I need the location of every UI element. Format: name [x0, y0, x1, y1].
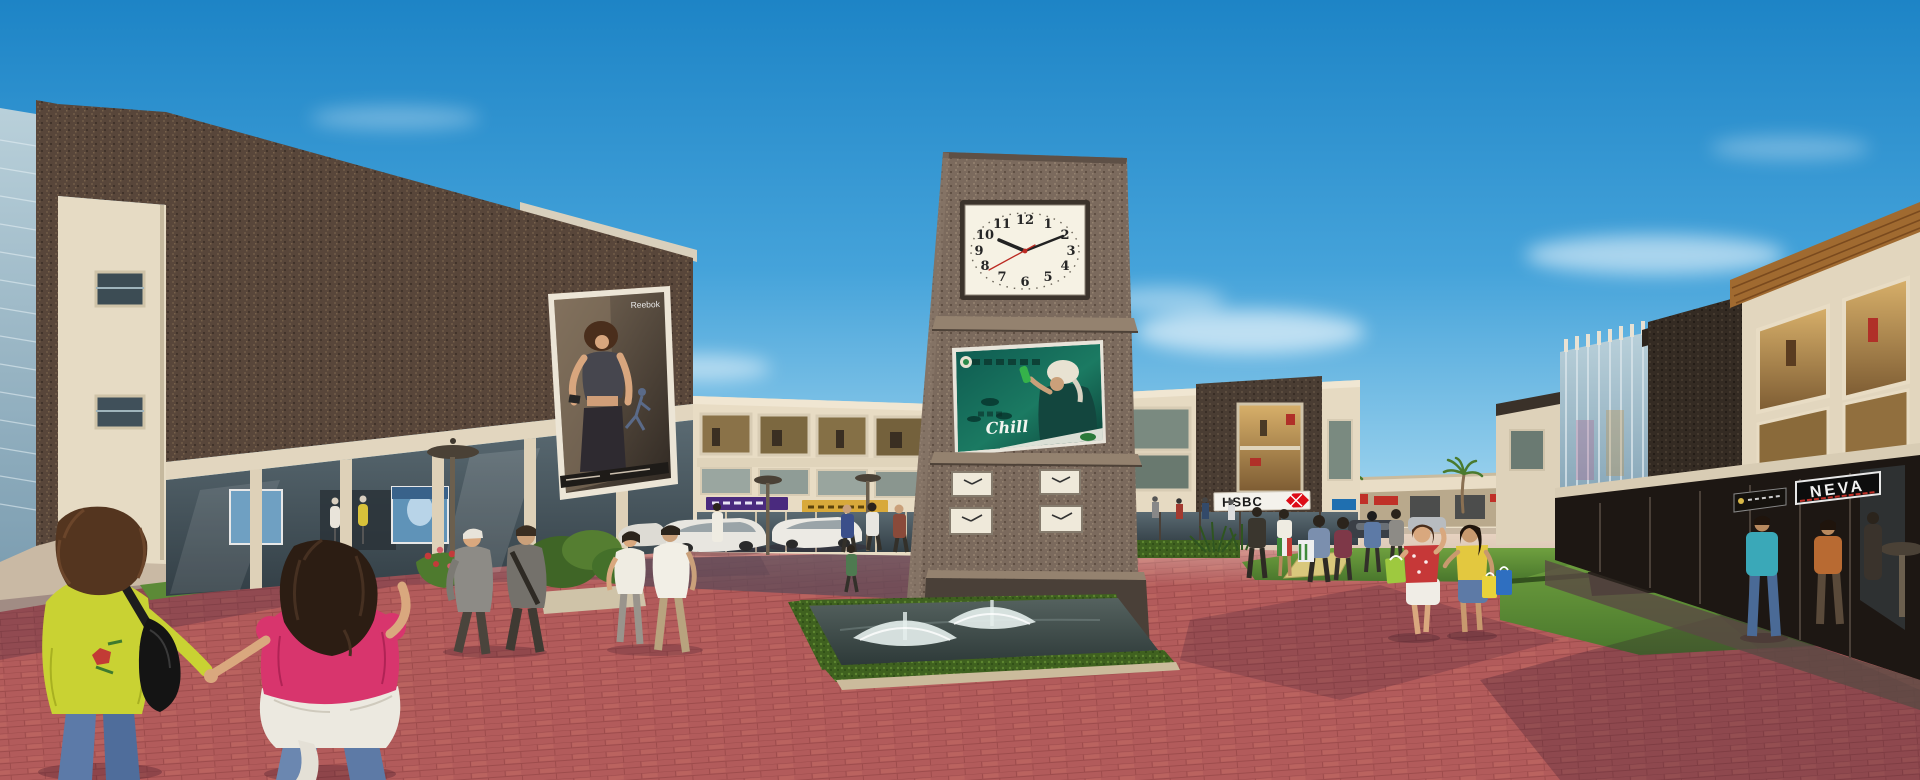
small-clock — [1040, 506, 1082, 532]
clock-tower: 12 1 2 3 4 5 6 7 8 9 10 11 — [903, 152, 1150, 648]
yellow-shopping-bag — [1482, 576, 1497, 598]
small-clock — [1040, 470, 1080, 494]
clock-numeral: 3 — [1066, 244, 1075, 259]
clock-numeral: 10 — [976, 228, 994, 243]
small-clock — [950, 508, 992, 534]
clock-numeral: 7 — [997, 270, 1006, 285]
tower-billboard: Chill — [952, 340, 1106, 456]
plaza-scene: HSBC — [0, 0, 1920, 780]
clock-numeral: 4 — [1060, 259, 1069, 274]
clock-numeral: 6 — [1020, 275, 1029, 290]
billboard-brand-text: Chill — [985, 417, 1029, 438]
green-shopping-bag — [1385, 557, 1406, 584]
clock-numeral: 9 — [974, 244, 983, 259]
main-clock: 12 1 2 3 4 5 6 7 8 9 10 11 — [960, 200, 1090, 300]
clock-numeral: 8 — [980, 259, 989, 274]
small-clock — [952, 472, 992, 496]
glass-facade — [0, 108, 36, 562]
clock-numeral: 1 — [1043, 217, 1052, 232]
reebok-poster-label: Reebok — [630, 299, 660, 310]
plaza-rendering: HSBC — [0, 0, 1920, 780]
blue-shopping-bag — [1496, 570, 1512, 595]
reebok-poster: Reebok — [548, 286, 678, 500]
blue-shop-sign — [1332, 499, 1356, 510]
clock-numeral: 5 — [1043, 270, 1052, 285]
clock-numeral: 12 — [1016, 213, 1034, 228]
clock-numeral: 11 — [993, 217, 1011, 232]
